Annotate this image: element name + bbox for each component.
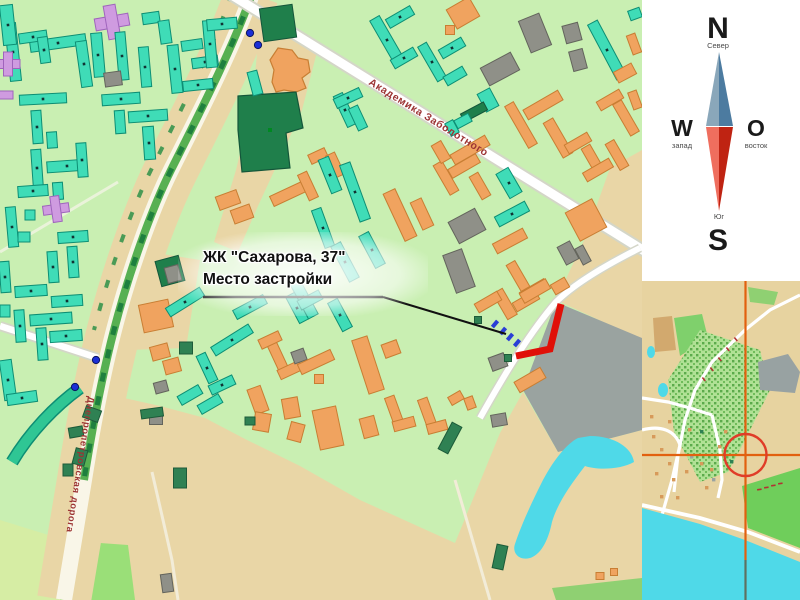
inset-speck (718, 445, 721, 448)
building (475, 317, 482, 324)
entrance-dot (7, 379, 10, 382)
entrance-dot (19, 325, 22, 328)
inset-speck (676, 496, 679, 499)
building (46, 132, 57, 149)
entrance-dot (50, 318, 53, 321)
inset-speck (710, 468, 713, 471)
compass-west-sub: запад (672, 141, 693, 150)
inset-speck (660, 448, 663, 451)
entrance-dot (42, 98, 45, 101)
building (142, 11, 160, 24)
entrance-dot (7, 24, 10, 27)
building (25, 210, 35, 220)
inset-speck (712, 478, 715, 481)
building (596, 573, 604, 580)
entrance-dot (66, 165, 69, 168)
callout-line1: ЖК "Сахарова, 37" (203, 247, 423, 269)
entrance-dot (43, 49, 46, 52)
inset-brown-field (653, 316, 676, 352)
inset-speck (705, 486, 708, 489)
callout-line2: Место застройки (203, 269, 423, 291)
inset-speck (650, 415, 653, 418)
inset-speck (655, 472, 658, 475)
compass-w: W (671, 115, 693, 141)
inset-speck (668, 420, 671, 423)
entrance-dot (221, 23, 224, 26)
building (63, 464, 73, 476)
building (114, 110, 126, 134)
compass-o: O (747, 115, 765, 141)
entrance-dot (120, 98, 123, 101)
building (4, 52, 13, 76)
entrance-dot (65, 335, 68, 338)
entrance-dot (81, 159, 84, 162)
traffic-dot (71, 383, 78, 390)
entrance-dot (11, 226, 14, 229)
entrance-dot (83, 63, 86, 66)
entrance-dot (147, 115, 150, 118)
compass-s: S (708, 224, 728, 257)
building (180, 342, 193, 354)
compass-south-sub: Юг (714, 212, 725, 221)
inset-speck (652, 435, 655, 438)
entrance-dot (72, 261, 75, 264)
building (281, 397, 300, 419)
entrance-dot (52, 266, 55, 269)
entrance-dot (72, 236, 75, 239)
building (174, 468, 187, 488)
building (18, 232, 30, 242)
building (0, 305, 10, 317)
building (611, 569, 618, 576)
compass-east-sub: восток (745, 141, 768, 150)
inset-speck (660, 495, 663, 498)
compass-needle (706, 52, 733, 211)
entrance-dot (32, 36, 35, 39)
building (0, 91, 13, 99)
entrance-dot (197, 84, 200, 87)
inset-speck (668, 462, 671, 465)
inset-speck (730, 460, 733, 463)
map-figure: Академика Заболотного Днепропетровская д… (0, 0, 800, 600)
entrance-dot (4, 276, 7, 279)
main-city-map: Академика Заболотного Днепропетровская д… (0, 0, 642, 600)
traffic-dot (246, 29, 253, 36)
building (446, 26, 455, 35)
entrance-dot (144, 66, 147, 69)
entrance-dot (36, 126, 39, 129)
entrance-dot (121, 55, 124, 58)
inset-speck (724, 430, 727, 433)
entrance-dot (21, 397, 24, 400)
entrance-dot (97, 54, 100, 57)
entrance-dot (148, 142, 151, 145)
inset-speck (700, 462, 703, 465)
traffic-dot (92, 356, 99, 363)
school-dot (268, 128, 272, 132)
building (138, 299, 173, 333)
inset-speck (685, 470, 688, 473)
entrance-dot (36, 167, 39, 170)
inset-pond-2 (647, 346, 655, 358)
building (245, 417, 255, 425)
inset-speck (672, 478, 675, 481)
building (259, 4, 296, 41)
entrance-dot (57, 42, 60, 45)
entrance-dot (174, 68, 177, 71)
site-callout: ЖК "Сахарова, 37" Место застройки (203, 247, 423, 290)
building (505, 355, 512, 362)
inset-speck (688, 428, 691, 431)
inset-pond (658, 383, 668, 397)
compass-north-sub: Север (707, 41, 729, 50)
entrance-dot (30, 290, 33, 293)
compass-rose: N Север W запад O восток Юг S (640, 0, 800, 270)
traffic-dot (254, 41, 261, 48)
building (104, 71, 123, 87)
overview-inset-map (642, 281, 800, 600)
entrance-dot (32, 190, 35, 193)
entrance-dot (209, 43, 212, 46)
building (160, 573, 173, 592)
entrance-dot (41, 343, 44, 346)
building (491, 413, 508, 427)
entrance-dot (66, 300, 69, 303)
building (315, 375, 324, 384)
inset-speck (700, 430, 703, 433)
